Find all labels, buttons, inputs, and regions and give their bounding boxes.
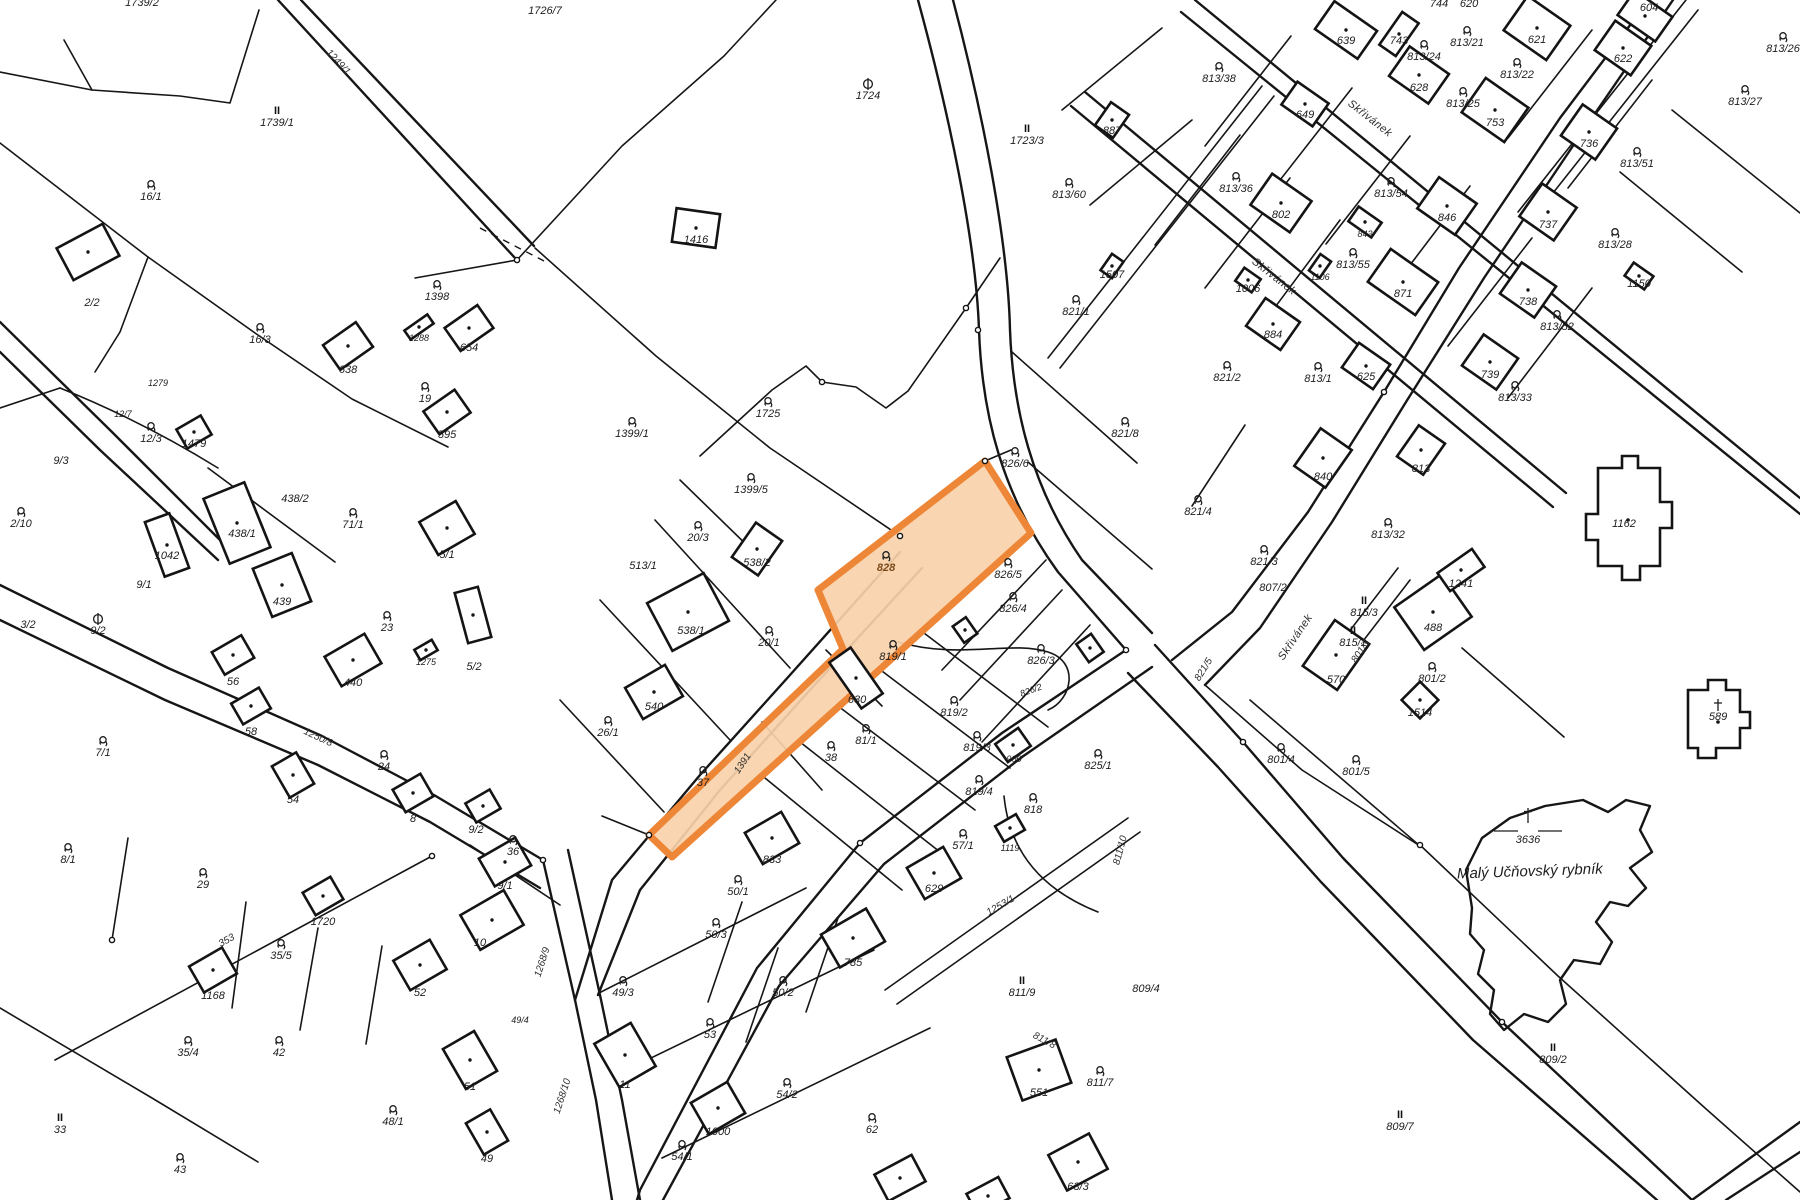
parcel-number: 813/25 (1446, 98, 1481, 110)
garden-icon (185, 1037, 192, 1046)
building-dot (755, 547, 758, 550)
parcel-number: 826/6 (1001, 458, 1029, 470)
building-dot (346, 344, 349, 347)
parcel-number: 2/2 (83, 297, 99, 309)
parcel-number: 81/1 (855, 735, 876, 747)
label-9-1: 9/1 (497, 880, 512, 892)
garden-icon (960, 830, 967, 839)
parcel-number: 801/4 (1267, 754, 1295, 766)
building-dot (490, 918, 493, 921)
label-1150: 1150 (1627, 278, 1652, 290)
parcel-number: 1042 (155, 550, 179, 562)
label-1720: 1720 (311, 916, 336, 928)
label-819-2: 819/2 (940, 697, 968, 719)
building-dot (1535, 26, 1538, 29)
garden-icon (735, 876, 742, 885)
label-813-36: 813/36 (1219, 173, 1254, 195)
label-35-5: 35/5 (270, 940, 292, 962)
parcel-number: 1720 (311, 916, 336, 928)
label-753: 753 (1486, 117, 1505, 129)
label-Skřivánek: Skřivánek (1345, 98, 1394, 140)
parcel-number: 739 (1481, 369, 1499, 381)
garden-icon (390, 1106, 397, 1115)
parcel-number: 821/8 (1111, 428, 1139, 440)
label-813-21: 813/21 (1450, 27, 1484, 49)
parcel-number: 50/3 (705, 929, 727, 941)
parcel-number: 813/1 (1304, 373, 1332, 385)
highlight-parcel-number: 828 (877, 562, 896, 574)
parcel-number: 19 (419, 393, 431, 405)
building-dot (1271, 322, 1274, 325)
parcel-number: 438/2 (281, 493, 309, 505)
label-825-1: 825/1 (1084, 750, 1112, 772)
garden-icon (695, 522, 702, 531)
parcel-number: 900 (1006, 754, 1021, 764)
building-dot (1344, 28, 1347, 31)
parcel-number: 24 (377, 761, 390, 773)
garden-icon (869, 1114, 876, 1123)
parcel-number: 630 (848, 694, 867, 706)
label-813: 813 (1412, 463, 1431, 475)
label-809-2: II809/2 (1539, 1042, 1567, 1066)
parcel-number: 785 (844, 957, 863, 969)
parcel-number: 807/2 (1259, 582, 1287, 594)
parcel-number: 53 (704, 1029, 717, 1041)
building-dot (1318, 264, 1321, 267)
label-9-1: 9/1 (136, 579, 151, 591)
building-dot (851, 936, 854, 939)
parcel-number: 438/1 (228, 528, 256, 540)
grassland-icon: II (1397, 1109, 1403, 1121)
label-813-55: 813/55 (1336, 249, 1371, 271)
garden-icon (766, 627, 773, 636)
building-dot (898, 1176, 901, 1179)
parcel-number: 819/4 (965, 786, 993, 798)
garden-icon (1038, 645, 1045, 654)
label-16-1: 16/1 (140, 181, 161, 203)
parcel-number: 440 (344, 677, 363, 689)
parcel-number: 1724 (856, 90, 880, 102)
label-813-60: 813/60 (1052, 179, 1087, 201)
garden-icon (434, 281, 441, 290)
building-dot (231, 653, 234, 656)
building-dot (1445, 204, 1448, 207)
label-639: 639 (1337, 35, 1355, 47)
garden-icon (974, 732, 981, 741)
garden-icon (1066, 179, 1073, 188)
label-620: 620 (1460, 0, 1479, 10)
label-826-6: 826/6 (1001, 448, 1029, 470)
map-canvas[interactable]: 1739/2II1739/11726/71249/116/12/216/3139… (0, 0, 1800, 1200)
parcel-number: 29 (196, 879, 209, 891)
parcel-number: 813/27 (1728, 96, 1763, 108)
garden-icon (1005, 559, 1012, 568)
parcel-number: 625 (1357, 371, 1376, 383)
garden-icon (707, 1019, 714, 1028)
parcel-number: 50/1 (727, 886, 748, 898)
parcel-number: 753 (1486, 117, 1505, 129)
building-dot (321, 894, 324, 897)
parcel-number: 570 (1327, 674, 1346, 686)
garden-icon (1742, 86, 1749, 95)
parcel-number: 821/1 (1062, 306, 1090, 318)
parcel-number: 649 (1296, 109, 1314, 121)
garden-icon (1224, 362, 1231, 371)
parcel-number: 5/1 (439, 549, 454, 561)
label-649: 649 (1296, 109, 1314, 121)
garden-icon (1634, 148, 1641, 157)
label-51: 51 (464, 1081, 476, 1093)
parcel-number: 818 (1024, 804, 1043, 816)
label-1399-5: 1399/5 (734, 474, 769, 496)
grassland-icon: II (1361, 595, 1367, 607)
building-dot (1076, 1160, 1079, 1163)
label-26-1: 26/1 (596, 717, 618, 739)
label-540: 540 (645, 701, 664, 713)
label-744: 744 (1430, 0, 1448, 10)
building-dot (445, 410, 448, 413)
parcel-number: 811/7 (1087, 1077, 1115, 1089)
parcel-number: 1399/1 (615, 428, 649, 440)
label-12-7: 12/7 (114, 409, 133, 419)
label-813-32: 813/32 (1371, 519, 1405, 541)
parcel-number: 1006 (1236, 283, 1261, 295)
grassland-icon: II (57, 1112, 63, 1124)
building-dot (1037, 1068, 1040, 1071)
label-821-8: 821/8 (1111, 418, 1139, 440)
building-dot (963, 628, 966, 631)
grassland-icon: II (1350, 625, 1356, 637)
parcel-number: 629 (925, 883, 943, 895)
parcel-number: 9/3 (53, 455, 69, 467)
label-818: 818 (1024, 794, 1043, 816)
label-2-10: 2/10 (9, 508, 32, 530)
building-dot (424, 648, 427, 651)
parcel-number: 639 (1337, 35, 1355, 47)
label-1726-7: 1726/7 (528, 5, 563, 17)
label-654: 654 (460, 342, 478, 354)
label-813-52: 813/52 (1540, 311, 1574, 333)
parcel-number: 887 (1103, 125, 1122, 137)
label-813-28: 813/28 (1598, 229, 1633, 251)
parcel-number: 813/22 (1500, 69, 1534, 81)
garden-icon (18, 508, 25, 517)
parcel-number: 1150 (1627, 278, 1652, 290)
label-826-2: 826/2 (1019, 682, 1044, 699)
garden-icon (713, 919, 720, 928)
parcel-number: 71/1 (342, 519, 363, 531)
parcel-number: 821/3 (1250, 556, 1278, 568)
label-1000: 1000 (706, 1126, 731, 1138)
label-821-3: 821/3 (1250, 546, 1278, 568)
label-884: 884 (1264, 329, 1282, 341)
label-801-5: 801/5 (1342, 756, 1370, 778)
building-dot (1431, 610, 1434, 613)
parcel-number: 1739/1 (260, 117, 294, 129)
label-9-2: 9/2 (90, 613, 105, 637)
parcel-number: 16/1 (140, 191, 161, 203)
parcel-number: 49/4 (511, 1015, 529, 1025)
label-737: 737 (1539, 219, 1558, 231)
garden-icon (828, 742, 835, 751)
label-52: 52 (414, 987, 426, 999)
label-538-1: 538/1 (677, 625, 705, 637)
parcel-number: 884 (1264, 329, 1282, 341)
label-625: 625 (1357, 371, 1376, 383)
building-dot (1008, 826, 1011, 829)
building-dot (1303, 102, 1306, 105)
label-1168: 1168 (201, 990, 226, 1002)
parcel-number: 819/1 (879, 651, 907, 663)
parcel-number: 813/21 (1450, 37, 1484, 49)
label-900: 900 (1006, 754, 1021, 764)
label-887: 887 (1103, 125, 1122, 137)
garden-icon (1095, 750, 1102, 759)
building-dot (1418, 698, 1421, 701)
parcel-number: 1162 (1612, 518, 1636, 530)
grassland-icon: II (1019, 975, 1025, 987)
label-570: 570 (1327, 674, 1346, 686)
garden-icon (257, 324, 264, 333)
label-38: 38 (825, 742, 838, 764)
parcel-number: Skřivánek (1345, 98, 1394, 140)
label-813-27: 813/27 (1728, 86, 1763, 108)
parcel-number: 737 (1539, 219, 1558, 231)
parcel-number: 1399/5 (734, 484, 769, 496)
building-dot (468, 1058, 471, 1061)
parcel-number: 3636 (1516, 834, 1541, 846)
building-dot (445, 526, 448, 529)
label-811-7: 811/7 (1087, 1067, 1115, 1089)
parcel-number: 1168 (201, 990, 226, 1002)
parcel-number: 20/1 (757, 637, 779, 649)
garden-icon (1315, 363, 1322, 372)
label-9-3: 9/3 (53, 455, 69, 467)
label-821-2: 821/2 (1213, 362, 1241, 384)
parcel-number: 622 (1614, 53, 1632, 65)
building-dot (1417, 73, 1420, 76)
garden-icon (1353, 756, 1360, 765)
grassland-icon: II (274, 105, 280, 117)
garden-icon (1030, 794, 1037, 803)
label-48-1: 48/1 (382, 1106, 403, 1128)
label-638: 638 (339, 364, 358, 376)
parcel-number: 62 (866, 1124, 878, 1136)
label-20-1: 20/1 (757, 627, 779, 649)
label-3-2: 3/2 (20, 619, 35, 631)
label-3636: 3636 (1494, 808, 1562, 846)
building-dot (1364, 364, 1367, 367)
parcel-number: 809/4 (1132, 983, 1160, 995)
parcel-number: 621 (1528, 34, 1546, 46)
garden-icon (278, 940, 285, 949)
label-833: 833 (763, 854, 782, 866)
label-809-7: II809/7 (1386, 1109, 1414, 1133)
label-1723-3: II1723/3 (1010, 123, 1045, 147)
garden-icon (1073, 296, 1080, 305)
label-20-3: 20/3 (686, 522, 709, 544)
parcel-number: 10 (474, 937, 487, 949)
label-1739-1: II1739/1 (260, 105, 294, 129)
label-846: 846 (1438, 212, 1457, 224)
label-1006: 1006 (1236, 283, 1261, 295)
parcel-number: 813 (1412, 463, 1431, 475)
building-dot (770, 836, 773, 839)
building-footprint (1504, 0, 1571, 60)
parcel-number: 1726/7 (528, 5, 563, 17)
label-739: 739 (1481, 369, 1499, 381)
building-dot (652, 690, 655, 693)
parcel-number: 620 (1460, 0, 1479, 10)
parcel-number: 63/3 (1067, 1181, 1089, 1193)
parcel-number: 1106 (1310, 272, 1329, 282)
building-dot (1279, 201, 1282, 204)
label-813-33: 813/33 (1498, 382, 1533, 404)
building-dot (467, 326, 470, 329)
label-743: 743 (1390, 35, 1409, 47)
parcel-number: 9/1 (136, 579, 151, 591)
parcel-number: 826/5 (994, 569, 1022, 581)
label-23: 23 (380, 612, 394, 634)
parcel-number: 1279 (148, 378, 168, 388)
parcel-number: 9/1 (497, 880, 512, 892)
parcel-number: 604 (1640, 2, 1658, 14)
garden-icon (1514, 59, 1521, 68)
label-1106: 1106 (1310, 272, 1329, 282)
building-dot (623, 1053, 626, 1056)
parcel-number: 813/36 (1219, 183, 1254, 195)
garden-icon (381, 751, 388, 760)
garden-icon (1216, 63, 1223, 72)
label-813-24: 813/24 (1407, 41, 1441, 63)
parcel-number: 26/1 (596, 727, 618, 739)
building-dot (716, 1106, 719, 1109)
parcel-number: 813/38 (1202, 73, 1237, 85)
garden-icon (177, 1154, 184, 1163)
building-dot (1621, 46, 1624, 49)
garden-icon (1261, 546, 1268, 555)
label-1268-9: 1268/9 (533, 946, 553, 979)
label-811-9: II811/9 (1009, 975, 1036, 999)
parcel-number: 738 (1519, 296, 1538, 308)
label-71-1: 71/1 (342, 509, 363, 531)
parcel-number: 809/2 (1539, 1054, 1567, 1066)
label-8: 8 (410, 813, 417, 825)
building-dot (1246, 278, 1249, 281)
garden-icon (765, 398, 772, 407)
building-dot (481, 804, 484, 807)
label-604: 604 (1640, 2, 1658, 14)
parcel-number: 826/3 (1027, 655, 1055, 667)
parcel-number: 813/32 (1371, 529, 1405, 541)
parcel-number: 9/2 (468, 824, 483, 836)
label-440: 440 (344, 677, 363, 689)
label-62: 62 (866, 1114, 878, 1136)
building-dot (291, 773, 294, 776)
building-dot (418, 963, 421, 966)
grassland-icon: II (1550, 1042, 1556, 1054)
garden-icon (200, 869, 207, 878)
building-dot (1110, 264, 1113, 267)
label-50-3: 50/3 (705, 919, 727, 941)
parcel-number: 826/4 (999, 603, 1027, 615)
building-dot (351, 658, 354, 661)
parcel-number: 1249/1 (323, 47, 352, 77)
label-42: 42 (273, 1037, 285, 1059)
parcel-number: 35/4 (177, 1047, 198, 1059)
label-802: 802 (1272, 209, 1290, 221)
building-dot (280, 583, 283, 586)
label-628: 628 (1410, 82, 1429, 94)
cadastral-map: 1739/2II1739/11726/71249/116/12/216/3139… (0, 0, 1800, 1200)
label-1042: 1042 (155, 550, 179, 562)
label-1288: 1288 (409, 333, 429, 343)
garden-icon (1460, 88, 1467, 97)
label-738: 738 (1519, 296, 1538, 308)
parcel-number: 538/1 (677, 625, 705, 637)
parcel-number: 38 (825, 752, 838, 764)
label-1241: 1241 (1449, 578, 1473, 590)
label-629: 629 (925, 883, 943, 895)
label-622: 622 (1614, 53, 1632, 65)
label-785: 785 (844, 957, 863, 969)
garden-icon (1429, 663, 1436, 672)
building-dot (1363, 220, 1366, 223)
label-50-1: 50/1 (727, 876, 748, 898)
building-dot (192, 430, 195, 433)
label-1398: 1398 (425, 281, 450, 303)
garden-icon (100, 737, 107, 746)
label-57-1: 57/1 (952, 830, 973, 852)
building-dot (686, 610, 689, 613)
building-dot (1459, 568, 1462, 571)
parcel-number: 37 (697, 777, 710, 789)
other-area-icon (864, 78, 873, 90)
building-dot (1526, 288, 1529, 291)
label-7-1: 7/1 (95, 737, 110, 759)
parcel-number: 20/3 (686, 532, 709, 544)
parcel-number: 11 (619, 1079, 630, 1091)
parcel-number: 813/24 (1407, 51, 1441, 63)
parcel-number: 1398 (425, 291, 450, 303)
parcel-number: 49 (481, 1153, 493, 1165)
other-area-icon (94, 613, 103, 625)
parcel-number: 744 (1430, 0, 1448, 10)
label-595: 595 (438, 429, 457, 441)
label-1275: 1275 (416, 657, 437, 667)
label-54-2: 54/2 (776, 1079, 797, 1101)
label-1479: 1479 (182, 438, 206, 450)
label-11: 11 (619, 1079, 630, 1091)
parcel-number: 1275 (416, 657, 437, 667)
parcel-number: 1725 (756, 408, 781, 420)
label-438-1: 438/1 (228, 528, 256, 540)
building-dot (1011, 743, 1014, 746)
garden-icon (350, 509, 357, 518)
label-801-4: 801/4 (1267, 744, 1295, 766)
label-813-1: 813/1 (1304, 363, 1332, 385)
garden-icon (148, 181, 155, 190)
garden-icon (784, 1079, 791, 1088)
parcel-number: 809/7 (1386, 1121, 1414, 1133)
label-551: 551 (1030, 1087, 1048, 1099)
garden-icon (1097, 1067, 1104, 1076)
building-dot (211, 968, 214, 971)
parcel-number: 813/55 (1336, 259, 1371, 271)
garden-icon (384, 612, 391, 621)
label-1416: 1416 (684, 234, 709, 246)
label-1119: 1119 (1001, 843, 1020, 853)
